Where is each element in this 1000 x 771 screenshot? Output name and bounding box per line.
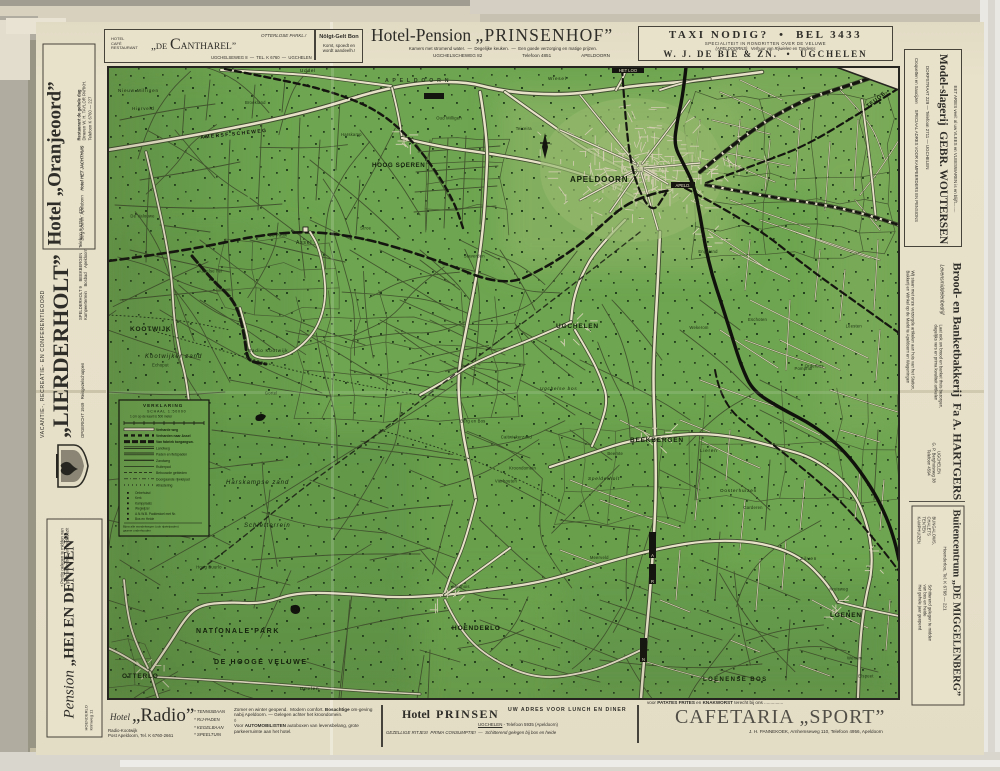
svg-text:HET LOO: HET LOO — [619, 68, 638, 73]
svg-text:HOOG SOEREN: HOOG SOEREN — [372, 162, 425, 169]
svg-text:Berg en Bos: Berg en Bos — [460, 418, 485, 423]
svg-text:Pomphul: Pomphul — [794, 366, 812, 371]
svg-text:Caitwickerzand: Caitwickerzand — [501, 435, 533, 440]
svg-text:APELD.: APELD. — [676, 183, 691, 188]
svg-text:Kroondomein: Kroondomein — [509, 466, 537, 471]
svg-text:UGCHELEN: UGCHELEN — [556, 323, 599, 330]
svg-text:Oosterhuizen: Oosterhuizen — [720, 488, 757, 493]
svg-text:BEEKBERGEN: BEEKBERGEN — [630, 437, 684, 444]
svg-text:Leesten: Leesten — [846, 323, 863, 328]
svg-text:Teixeira: Teixeira — [516, 126, 533, 131]
svg-text:Assel: Assel — [296, 240, 312, 246]
svg-text:Radio Kootwijk: Radio Kootwijk — [248, 348, 288, 353]
svg-text:Broekland: Broekland — [245, 100, 266, 105]
svg-text:Ugchelse bos: Ugchelse bos — [540, 386, 577, 391]
svg-text:Schietterrein: Schietterrein — [244, 523, 291, 529]
svg-text:Staverden: Staverden — [464, 254, 485, 259]
svg-text:Spelderholt: Spelderholt — [588, 476, 620, 481]
svg-text:Wekerom: Wekerom — [689, 325, 709, 330]
svg-text:Stroe: Stroe — [360, 225, 371, 230]
svg-text:Harskamp: Harskamp — [341, 132, 362, 137]
svg-text:Harskampse zand: Harskampse zand — [226, 480, 289, 486]
svg-text:Wiesel: Wiesel — [548, 76, 567, 81]
svg-text:Uddel: Uddel — [300, 68, 316, 73]
svg-text:Oud Milligen: Oud Milligen — [436, 116, 462, 121]
svg-text:Lieren: Lieren — [700, 448, 718, 453]
svg-text:Beemte: Beemte — [607, 451, 623, 456]
svg-text:Eschoten: Eschoten — [748, 317, 768, 322]
svg-text:Vierhouten: Vierhouten — [495, 479, 518, 484]
svg-text:APELDOORN: APELDOORN — [570, 175, 628, 184]
svg-text:De Pauw: De Pauw — [269, 233, 288, 238]
svg-text:Engeland: Engeland — [698, 249, 718, 254]
svg-text:Meerveld: Meerveld — [590, 555, 609, 560]
svg-text:Garderen: Garderen — [743, 505, 763, 510]
svg-text:A: A — [651, 553, 654, 558]
svg-text:A P E L D O O R N: A P E L D O O R N — [385, 78, 450, 84]
